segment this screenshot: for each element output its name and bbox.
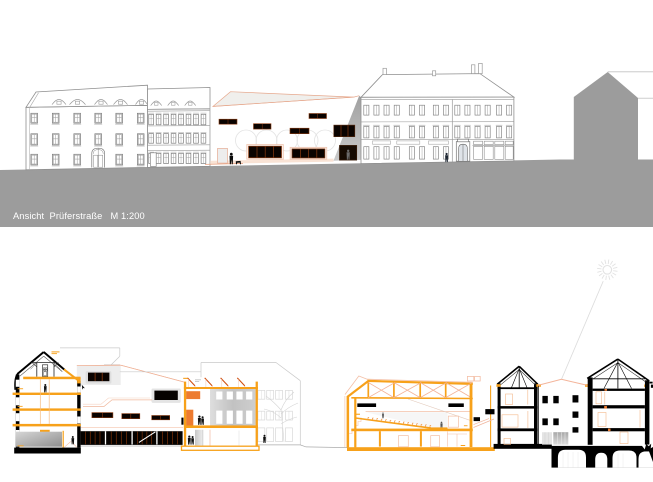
svg-text:Ansicht Prüferstraße M 1:20: Ansicht Prüferstraße M 1:200 (13, 211, 145, 221)
